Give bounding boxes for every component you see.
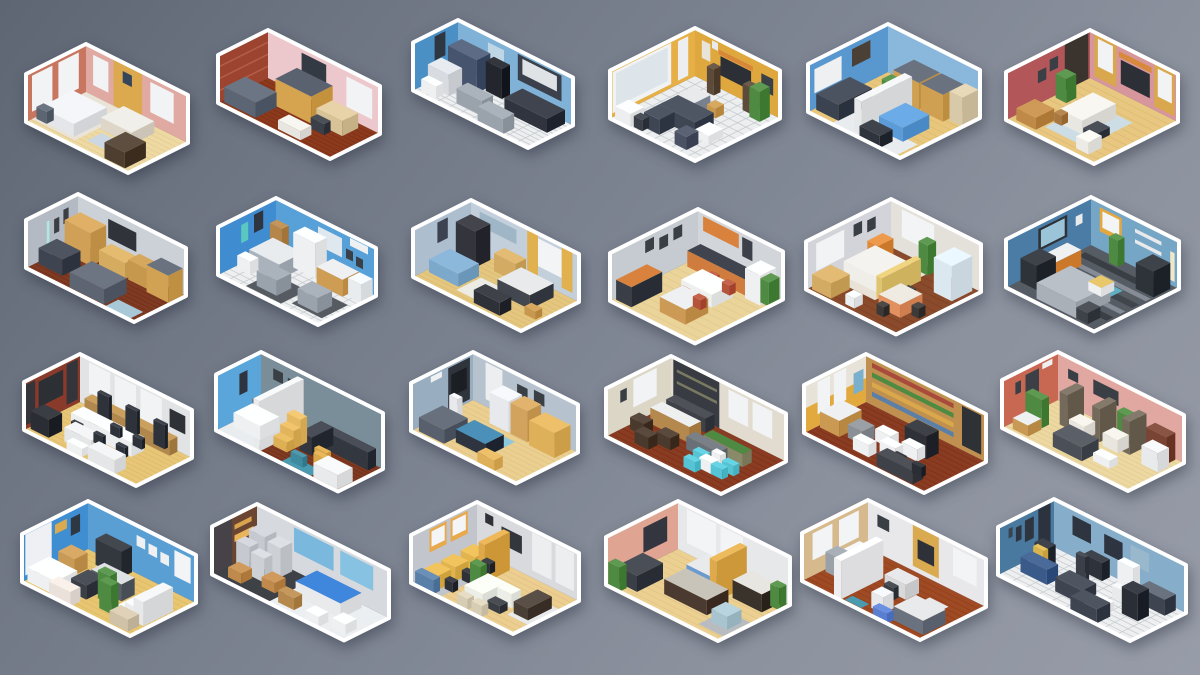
room-living-kitchen: living room with slat-partitioned kitche… [600,495,796,647]
room-kitchen-diner: kitchen-diner with orange cabinets [604,203,789,350]
room-zen-studio: zen studio with shoji folding screens [996,346,1190,497]
room-cafe-bar: cafe bar with turquoise chairs [600,350,792,500]
room-open-dining-living: open-plan dining platform and living roo… [405,496,585,640]
room-office: office with conference table and worksta… [18,348,198,492]
room-duplex-bath-kitchen: split bathroom and kitchen with stairs [210,346,389,498]
room-blue-lounge: blue lounge with striped dark tile floor [1000,191,1185,338]
room-game-room: game room with billiard table [405,346,584,490]
room-brick-studio: brick-wall studio with loft bed [212,24,386,165]
room-music-studio: music studio with drum kit [992,493,1192,647]
room-blue-bathroom: blue bathroom with dark tub and shower [407,14,579,154]
rooms-grid: coral bedroom with slat accent wallbrick… [0,0,1200,675]
room-home-office-suite: home office suite with partitions [796,494,992,646]
room-bluegray-living: blue-gray living room with yellow curtai… [407,194,585,337]
room-dorm-bunks: blue dorm room with bunk beds and partit… [802,18,986,164]
room-bedroom-suite: bedroom suite with dining nook [800,193,987,341]
room-home-gym: home gym loft with white staircase [16,495,202,642]
room-pool-sauna: pool and sauna locker room [206,498,395,647]
room-bath-laundry: blue bathroom with laundry corner [212,192,382,331]
room-library: library reading room with book wall [798,348,992,499]
room-yellow-living: yellow panelled living room [604,22,786,167]
room-gray-studio: gray studio apartment with bunk and sofa [20,188,192,328]
room-coral-bedroom: coral bedroom with slat accent wall [20,38,194,179]
room-rose-living: rose living room with white sofa [1000,24,1184,170]
